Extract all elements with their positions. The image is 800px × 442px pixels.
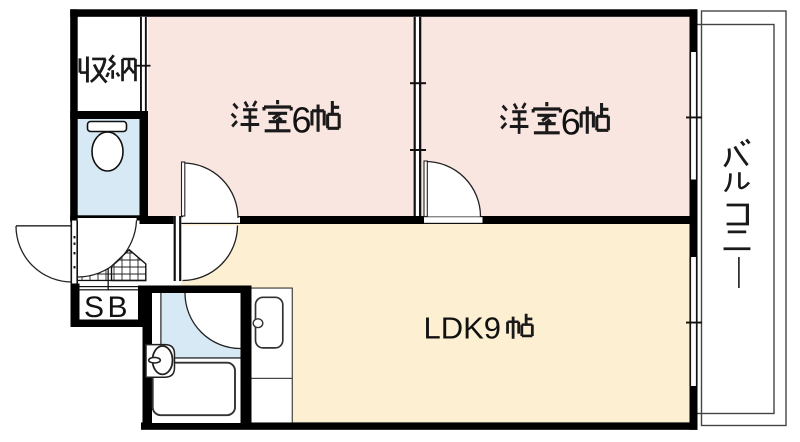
svg-text:SB: SB <box>84 291 131 324</box>
svg-text:6: 6 <box>561 101 581 142</box>
svg-text:6: 6 <box>292 99 312 140</box>
svg-text:LDK9: LDK9 <box>424 311 502 346</box>
